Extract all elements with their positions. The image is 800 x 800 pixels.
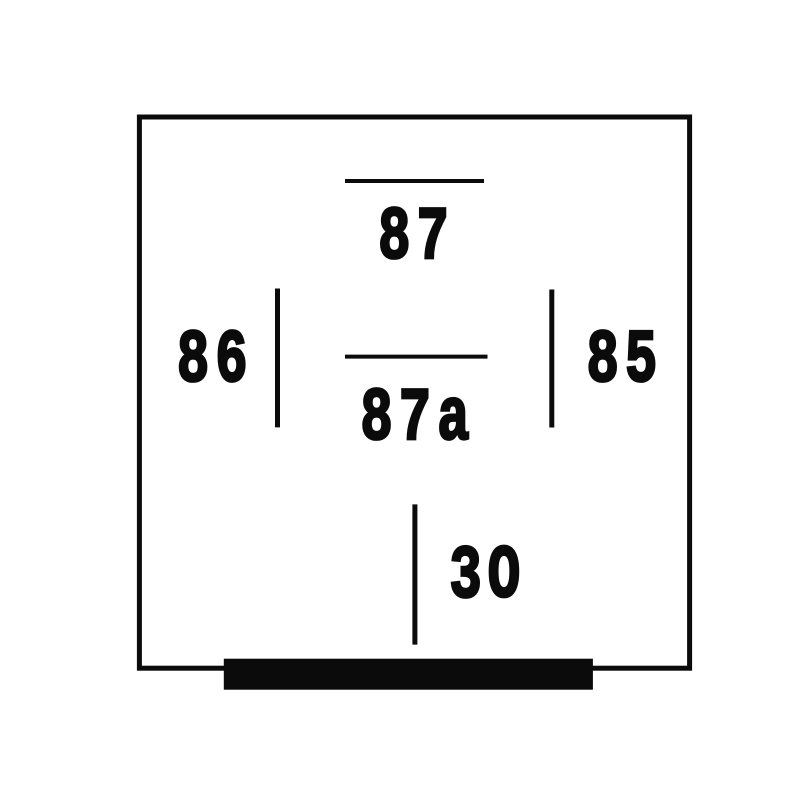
svg-text:86: 86: [177, 318, 254, 404]
svg-text:3O: 3O: [449, 533, 526, 619]
svg-text:87a: 87a: [360, 376, 475, 462]
svg-text:85: 85: [586, 318, 663, 404]
svg-text:87: 87: [378, 195, 455, 281]
